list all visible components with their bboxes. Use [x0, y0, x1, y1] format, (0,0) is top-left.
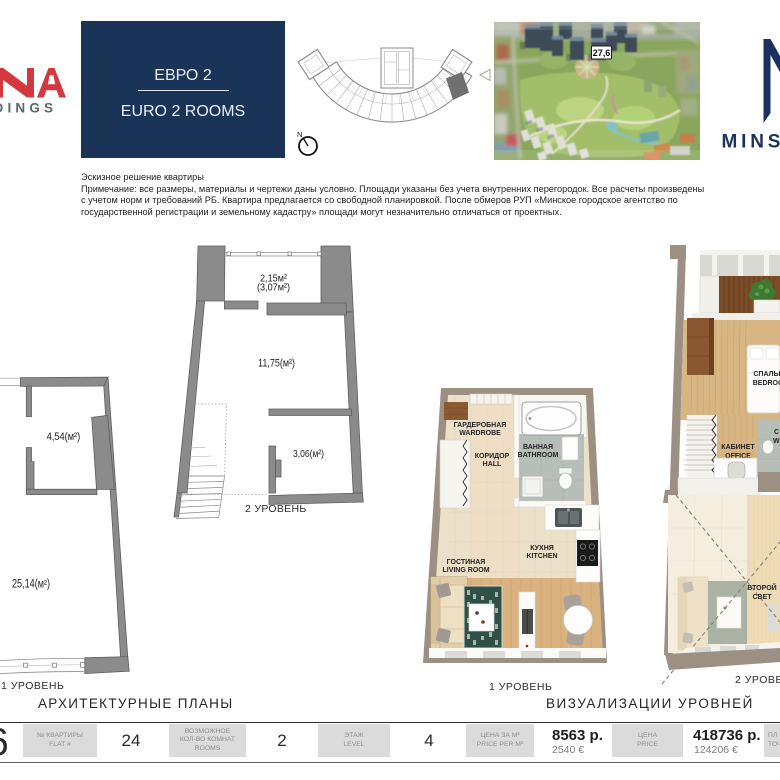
svg-text:27,6: 27,6 [593, 48, 611, 58]
svg-text:HALL: HALL [483, 461, 502, 468]
svg-text:MINSK: MINSK [722, 132, 780, 153]
svg-text:W: W [773, 438, 780, 445]
svg-text:(3,07м²): (3,07м²) [257, 282, 290, 294]
svg-text:КАБИНЕТ: КАБИНЕТ [721, 444, 755, 451]
svg-text:11,75(м²): 11,75(м²) [258, 358, 295, 370]
svg-text:3,06(м²): 3,06(м²) [293, 448, 324, 460]
svg-text:KITCHEN: KITCHEN [526, 553, 557, 560]
svg-text:КОРИДОР: КОРИДОР [475, 453, 510, 460]
svg-text:ГАРДЕРОБНАЯ: ГАРДЕРОБНАЯ [454, 422, 507, 429]
svg-text:СПАЛЬНЯ: СПАЛЬНЯ [753, 371, 780, 378]
svg-text:КУХНЯ: КУХНЯ [530, 545, 554, 552]
svg-text:WARDROBE: WARDROBE [459, 430, 501, 437]
svg-text:ВТОРОЙ: ВТОРОЙ [747, 583, 776, 592]
svg-text:4,54(м²): 4,54(м²) [47, 431, 80, 443]
svg-text:СВЕТ: СВЕТ [752, 594, 772, 601]
svg-text:ГОСТИНАЯ: ГОСТИНАЯ [447, 559, 486, 566]
svg-text:ВАННАЯ: ВАННАЯ [523, 444, 553, 451]
svg-text:BEDROOM: BEDROOM [753, 380, 780, 387]
svg-text:С: С [774, 429, 779, 436]
svg-text:LIVING ROOM: LIVING ROOM [442, 567, 489, 574]
svg-text:BATHROOM: BATHROOM [518, 452, 559, 459]
svg-text:25,14(м²): 25,14(м²) [12, 579, 50, 591]
svg-text:DINGS: DINGS [0, 101, 57, 116]
svg-text:N: N [297, 130, 302, 139]
